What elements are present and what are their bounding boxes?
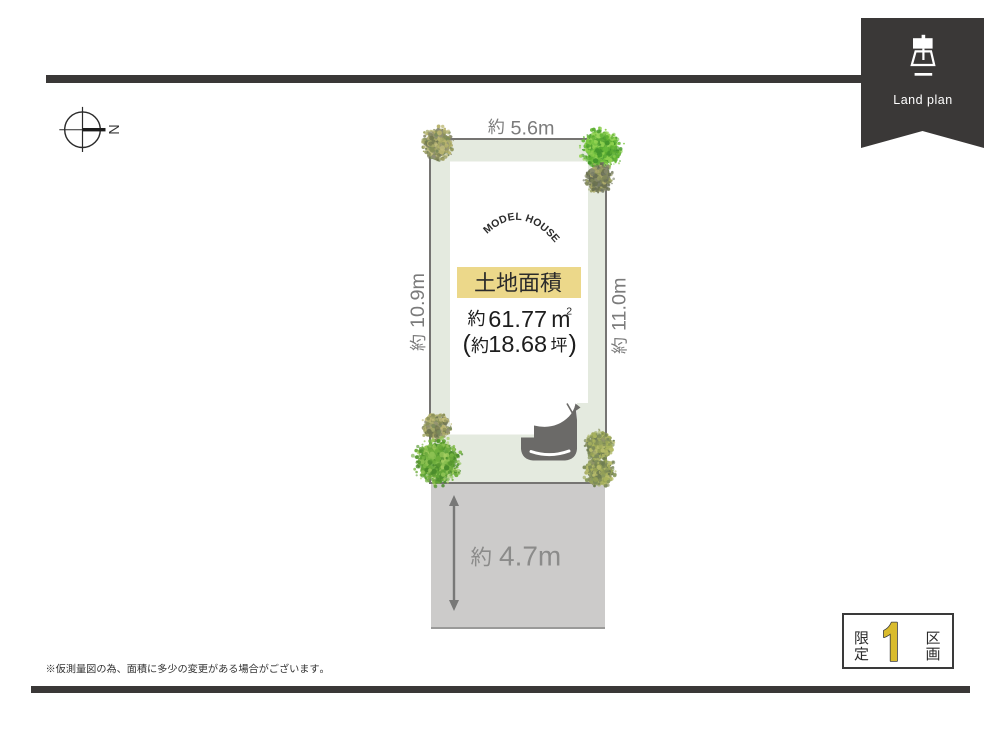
svg-text:18.68: 18.68 [488, 331, 547, 357]
svg-text:10.9m: 10.9m [407, 273, 429, 328]
svg-text:61.77: 61.77 [488, 306, 547, 332]
svg-text:4.7m: 4.7m [499, 541, 561, 572]
svg-text:5.6m: 5.6m [511, 118, 555, 140]
svg-text:11.0m: 11.0m [609, 277, 631, 331]
svg-text:): ) [569, 330, 577, 358]
svg-text:(: ( [463, 330, 472, 358]
svg-text:2: 2 [566, 306, 572, 318]
